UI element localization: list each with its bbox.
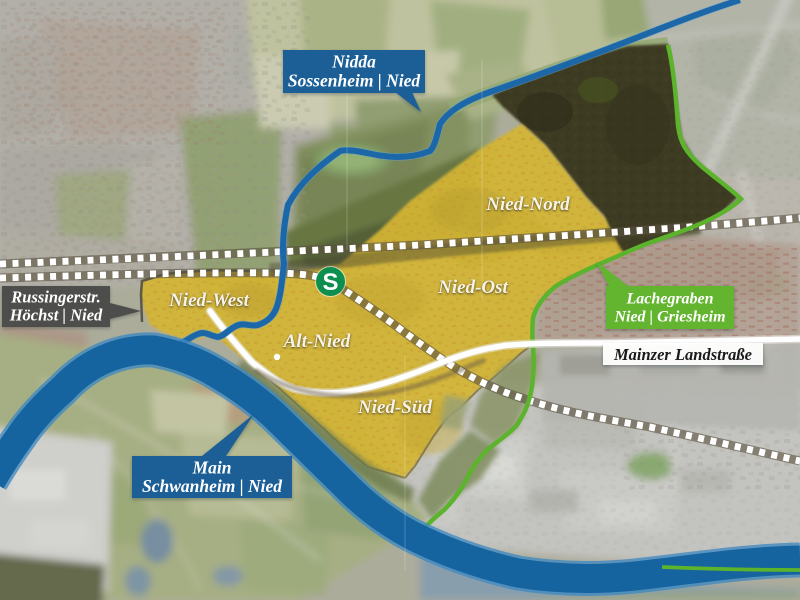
svg-text:Nied-West: Nied-West xyxy=(168,290,250,311)
svg-text:Nied-Ost: Nied-Ost xyxy=(437,277,508,298)
svg-text:Russingerstr.: Russingerstr. xyxy=(10,288,100,307)
svg-text:Lachegraben: Lachegraben xyxy=(625,291,713,308)
svg-text:Nied-Nord: Nied-Nord xyxy=(485,194,570,215)
svg-text:Schwanheim | Nied: Schwanheim | Nied xyxy=(142,476,282,496)
svg-text:S: S xyxy=(322,269,338,296)
svg-text:Alt-Nied: Alt-Nied xyxy=(283,331,351,352)
svg-text:Nied | Griesheim: Nied | Griesheim xyxy=(613,309,725,326)
svg-text:Nidda: Nidda xyxy=(331,52,376,72)
svg-text:Höchst | Nied: Höchst | Nied xyxy=(9,306,103,325)
svg-text:Main: Main xyxy=(192,458,232,478)
svg-text:Mainzer Landstraße: Mainzer Landstraße xyxy=(613,345,752,364)
svg-text:Nied-Süd: Nied-Süd xyxy=(357,397,432,418)
svg-text:Sossenheim | Nied: Sossenheim | Nied xyxy=(288,71,420,91)
